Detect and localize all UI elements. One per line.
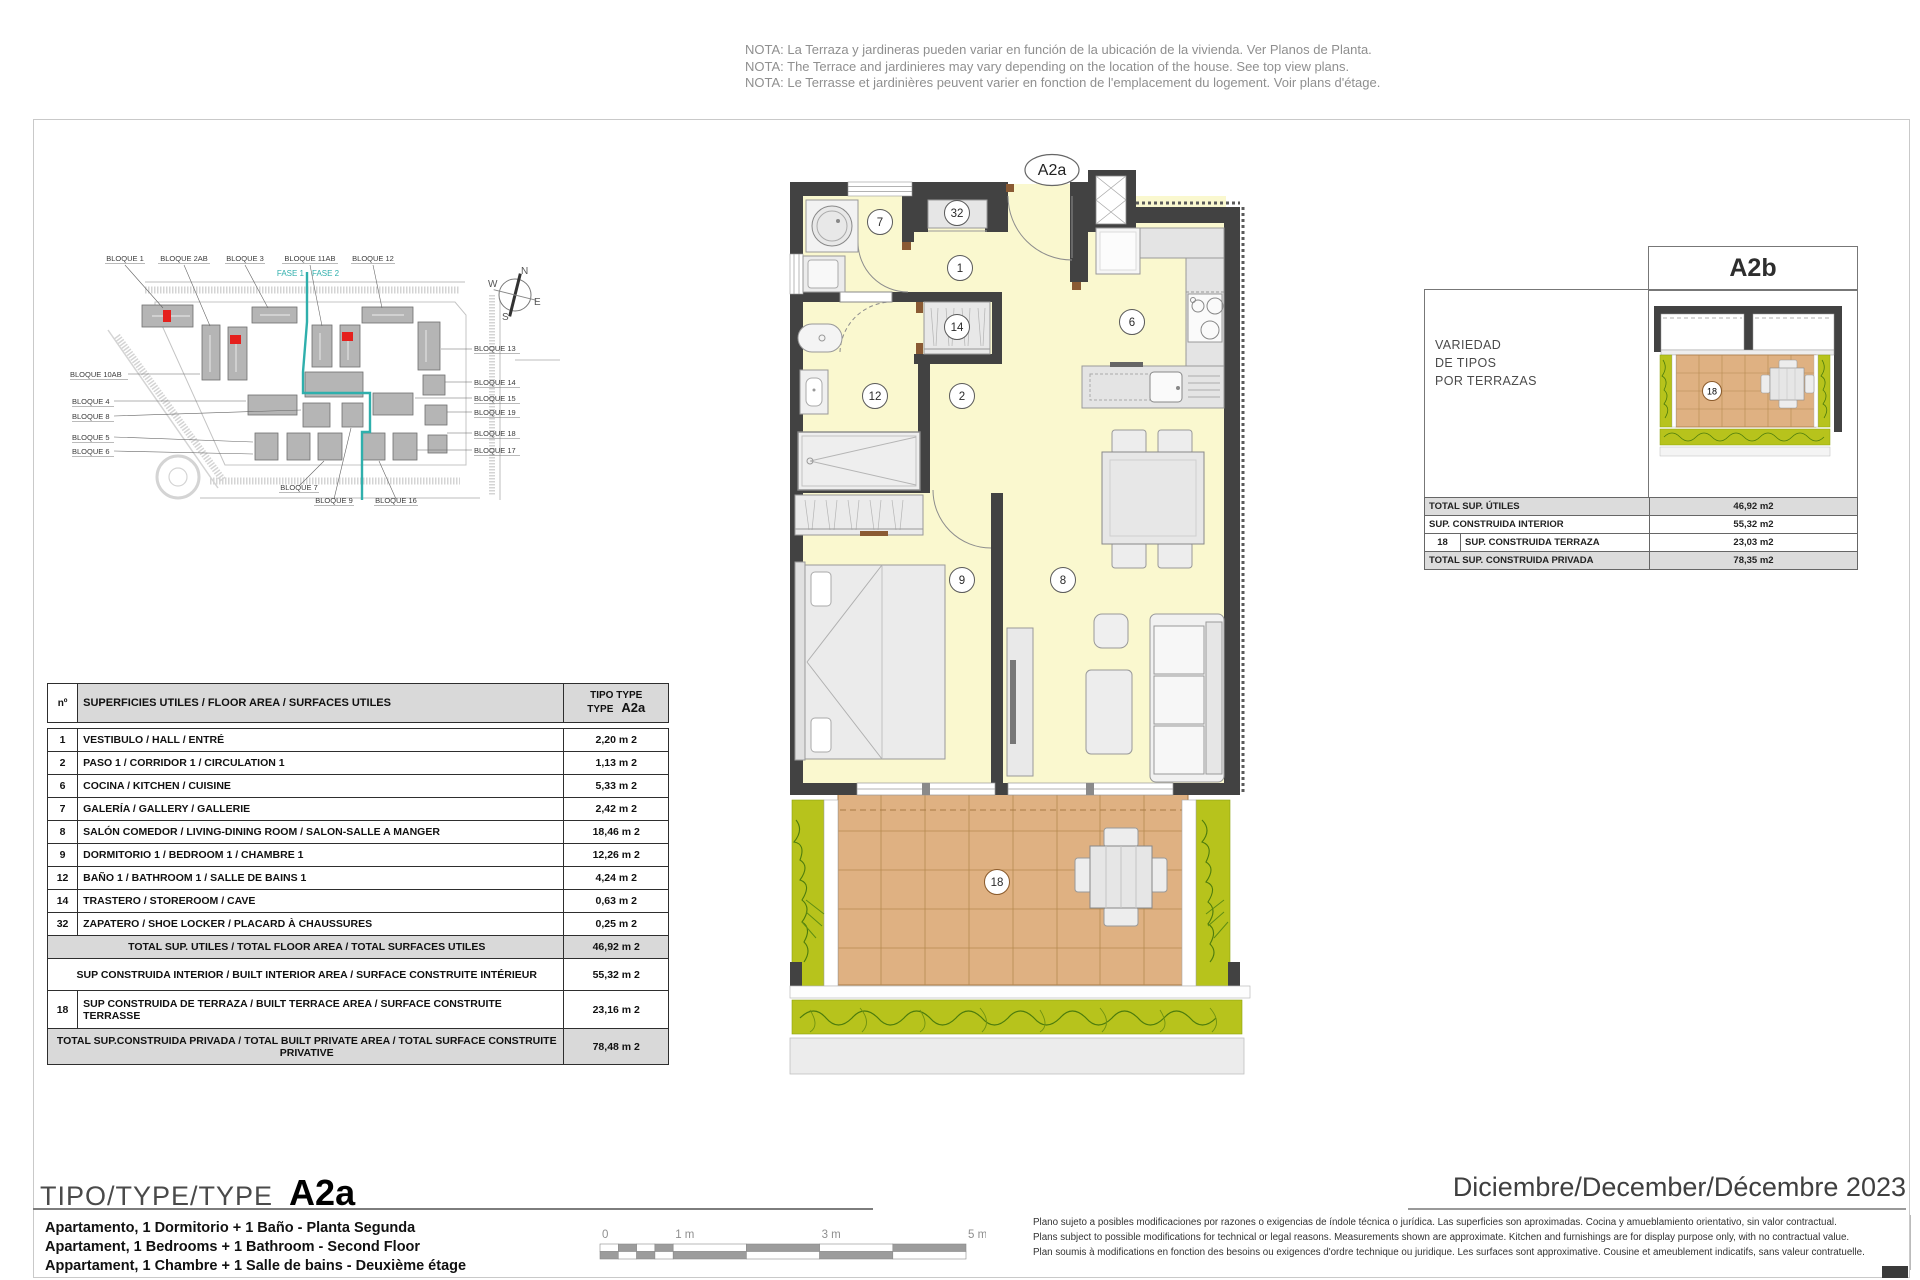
variant-area-row: TOTAL SUP. ÚTILES46,92 m2 bbox=[1425, 498, 1858, 516]
svg-text:A2a: A2a bbox=[1038, 162, 1067, 179]
wardrobe bbox=[795, 495, 923, 536]
site-block-label: BLOQUE 12 bbox=[352, 254, 394, 263]
unit-label-a2a: A2a bbox=[1025, 155, 1079, 186]
area-row: 32ZAPATERO / SHOE LOCKER / PLACARD À CHA… bbox=[48, 913, 669, 936]
note-line-fr: NOTA: Le Terrasse et jardinières peuvent… bbox=[745, 75, 1380, 92]
corner-box bbox=[1882, 1266, 1908, 1278]
area-row: 9DORMITORIO 1 / BEDROOM 1 / CHAMBRE 112,… bbox=[48, 844, 669, 867]
note-line-es: NOTA: La Terraza y jardineras pueden var… bbox=[745, 42, 1380, 59]
legal-disclaimer: Plano sujeto a posibles modificaciones p… bbox=[1033, 1215, 1905, 1261]
area-total-row: TOTAL SUP.CONSTRUIDA PRIVADA / TOTAL BUI… bbox=[48, 1029, 669, 1065]
site-block-label: BLOQUE 10AB bbox=[70, 370, 122, 379]
svg-text:E: E bbox=[534, 297, 541, 308]
note-line-en: NOTA: The Terrace and jardinieres may va… bbox=[745, 59, 1380, 76]
areas-table-header: nº SUPERFICIES UTILES / FLOOR AREA / SUR… bbox=[47, 683, 669, 723]
tv-unit bbox=[1007, 628, 1033, 776]
coffee-table bbox=[1086, 670, 1132, 754]
scale-bar: 01 m3 m5 m bbox=[596, 1224, 986, 1268]
fase2-label: FASE 2 bbox=[312, 269, 340, 278]
site-block-label: BLOQUE 1 bbox=[106, 254, 144, 263]
site-block-label: BLOQUE 9 bbox=[315, 496, 353, 505]
room-number: 14 bbox=[951, 322, 964, 334]
site-block-label: BLOQUE 14 bbox=[474, 378, 516, 387]
room-number: 6 bbox=[1129, 317, 1135, 329]
site-block-label: BLOQUE 2AB bbox=[160, 254, 208, 263]
site-block-label: BLOQUE 11AB bbox=[284, 254, 335, 263]
footer-rule-right bbox=[1408, 1208, 1906, 1210]
site-block-label: BLOQUE 8 bbox=[72, 412, 110, 421]
cooktop bbox=[1188, 294, 1223, 342]
shower-tray bbox=[798, 432, 920, 490]
area-row: 8SALÓN COMEDOR / LIVING-DINING ROOM / SA… bbox=[48, 821, 669, 844]
duct-shaft bbox=[1096, 176, 1126, 224]
site-block-label: BLOQUE 3 bbox=[226, 254, 264, 263]
garden-strip bbox=[792, 1000, 1242, 1034]
scale-label: 1 m bbox=[675, 1229, 694, 1241]
plan-sheet: NOTA: La Terraza y jardineras pueden var… bbox=[0, 0, 1920, 1280]
room-number: 12 bbox=[869, 391, 882, 403]
svg-text:W: W bbox=[488, 279, 498, 290]
room-number: 9 bbox=[959, 575, 965, 587]
terrace-notes: NOTA: La Terraza y jardineras pueden var… bbox=[745, 42, 1380, 92]
variant-area-row: SUP. CONSTRUIDA INTERIOR55,32 m2 bbox=[1425, 516, 1858, 534]
fase1-label: FASE 1 bbox=[277, 269, 305, 278]
room-number: 8 bbox=[1060, 575, 1066, 587]
site-block-label: BLOQUE 19 bbox=[474, 408, 516, 417]
variant-area-row: 18SUP. CONSTRUIDA TERRAZA23,03 m2 bbox=[1425, 534, 1858, 552]
site-block-label: BLOQUE 15 bbox=[474, 394, 516, 403]
side-table bbox=[1094, 614, 1128, 648]
site-block-label: BLOQUE 17 bbox=[474, 446, 516, 455]
room-number: 32 bbox=[951, 208, 964, 220]
svg-text:S: S bbox=[502, 312, 509, 323]
site-block-label: BLOQUE 13 bbox=[474, 344, 516, 353]
site-block-label: BLOQUE 5 bbox=[72, 433, 110, 442]
terrace bbox=[790, 792, 1250, 1074]
bed bbox=[795, 562, 945, 760]
col-num-header: nº bbox=[48, 684, 78, 723]
laundry-sink bbox=[803, 256, 845, 292]
toilet bbox=[800, 370, 828, 414]
svg-text:18: 18 bbox=[1707, 387, 1717, 397]
sofa bbox=[1150, 614, 1224, 782]
label-leader-lines bbox=[114, 265, 472, 499]
surface-areas-table: nº SUPERFICIES UTILES / FLOOR AREA / SUR… bbox=[47, 683, 669, 1065]
variant-caption: VARIEDAD DE TIPOS POR TERRAZAS bbox=[1435, 336, 1537, 390]
site-plan: BLOQUE 1BLOQUE 2ABBLOQUE 3BLOQUE 11ABBLO… bbox=[60, 240, 560, 530]
scale-label: 5 m bbox=[968, 1229, 986, 1241]
walkway bbox=[790, 1038, 1244, 1074]
corner-tick bbox=[1910, 1215, 1911, 1270]
date-title: Diciembre/December/Décembre 2023 bbox=[1060, 1172, 1906, 1203]
room-number: 7 bbox=[877, 217, 883, 229]
areas-table-body: 1VESTIBULO / HALL / ENTRÉ2,20 m 22PASO 1… bbox=[47, 728, 669, 1065]
site-block-label: BLOQUE 6 bbox=[72, 447, 110, 456]
area-row: 6COCINA / KITCHEN / CUISINE5,33 m 2 bbox=[48, 775, 669, 798]
scale-label: 0 bbox=[602, 1229, 608, 1241]
terrace-variants-panel: A2b VARIEDAD DE TIPOS POR TERRAZAS bbox=[1424, 246, 1858, 576]
area-total-row: SUP CONSTRUIDA INTERIOR / BUILT INTERIOR… bbox=[48, 959, 669, 991]
washing-machine bbox=[806, 200, 858, 252]
footer-rule-left bbox=[33, 1208, 873, 1210]
site-block-label: BLOQUE 4 bbox=[72, 397, 110, 406]
site-block-label: BLOQUE 18 bbox=[474, 429, 516, 438]
col-label-header: SUPERFICIES UTILES / FLOOR AREA / SURFAC… bbox=[78, 684, 564, 723]
floor-plan: A2a 73211461229818 bbox=[780, 130, 1260, 1080]
variant-areas-table: TOTAL SUP. ÚTILES46,92 m2SUP. CONSTRUIDA… bbox=[1424, 497, 1858, 570]
area-row: 12BAÑO 1 / BATHROOM 1 / SALLE DE BAINS 1… bbox=[48, 867, 669, 890]
washbasin bbox=[798, 324, 842, 352]
apartment-descriptions: Apartamento, 1 Dormitorio + 1 Baño - Pla… bbox=[45, 1219, 466, 1276]
area-total-row: TOTAL SUP. UTILES / TOTAL FLOOR AREA / T… bbox=[48, 936, 669, 959]
area-row: 7GALERÍA / GALLERY / GALLERIE2,42 m 2 bbox=[48, 798, 669, 821]
variant-terrace-drawing: 18 bbox=[1648, 290, 1856, 497]
site-block-label: BLOQUE 16 bbox=[375, 496, 417, 505]
room-number: 2 bbox=[959, 391, 965, 403]
scale-label: 3 m bbox=[822, 1229, 841, 1241]
site-block-label: BLOQUE 7 bbox=[280, 483, 318, 492]
svg-text:N: N bbox=[521, 266, 528, 277]
area-row: 14TRASTERO / STOREROOM / CAVE0,63 m 2 bbox=[48, 890, 669, 913]
area-row: 2PASO 1 / CORRIDOR 1 / CIRCULATION 11,13… bbox=[48, 752, 669, 775]
room-number: 1 bbox=[957, 263, 963, 275]
area-row: 1VESTIBULO / HALL / ENTRÉ2,20 m 2 bbox=[48, 729, 669, 752]
room-number: 18 bbox=[991, 877, 1004, 889]
fridge bbox=[1096, 228, 1140, 274]
variant-area-row: TOTAL SUP. CONSTRUIDA PRIVADA78,35 m2 bbox=[1425, 552, 1858, 570]
col-type-header: TIPO TYPE TYPE A2a bbox=[564, 684, 669, 723]
compass-icon: N W E S bbox=[488, 266, 542, 323]
area-total-row: 18SUP CONSTRUIDA DE TERRAZA / BUILT TERR… bbox=[48, 991, 669, 1029]
variant-title: A2b bbox=[1648, 246, 1858, 291]
balcony-doors bbox=[857, 783, 1173, 795]
